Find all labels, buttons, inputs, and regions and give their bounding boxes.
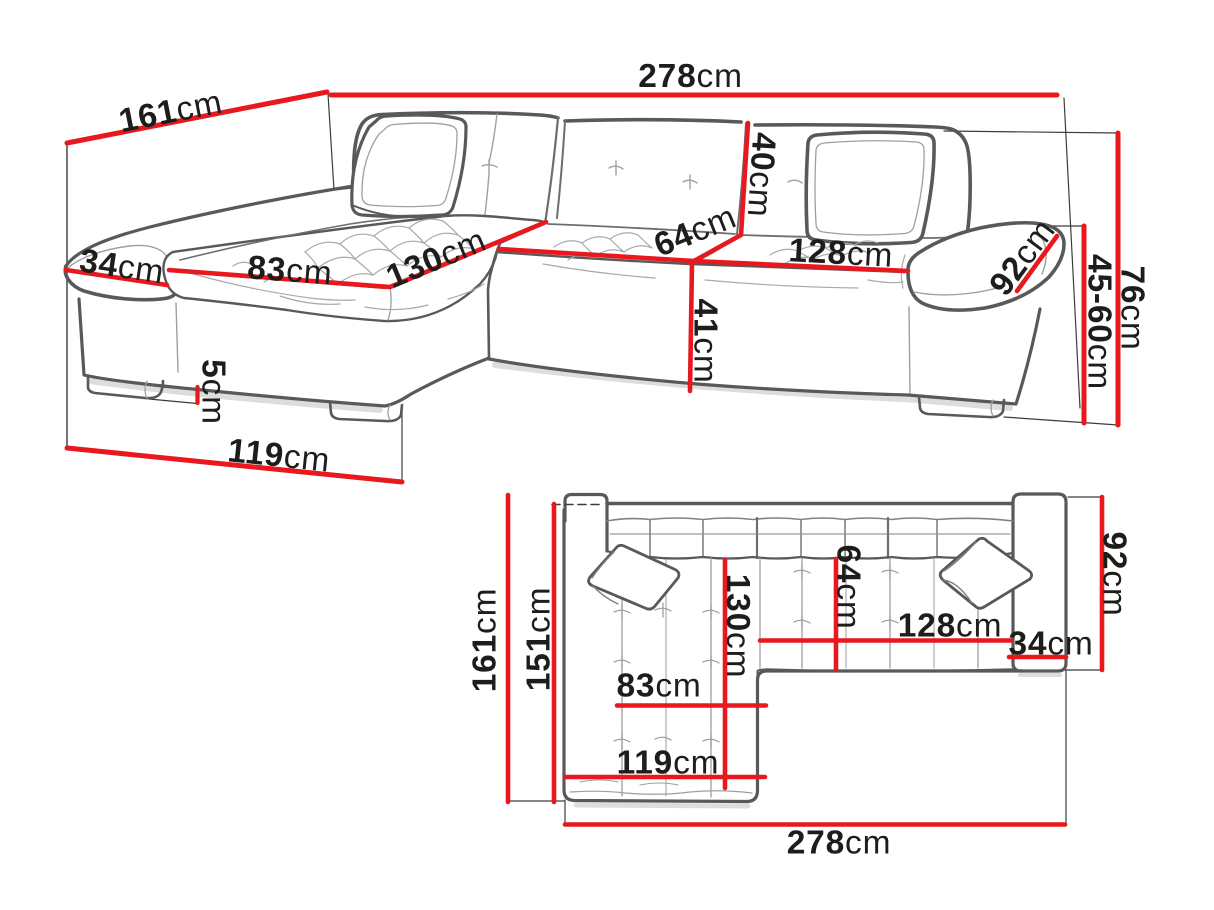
svg-text:41cm: 41cm [687, 298, 724, 383]
svg-text:278cm: 278cm [638, 58, 743, 95]
svg-text:128cm: 128cm [898, 608, 1003, 645]
svg-text:76cm: 76cm [1114, 265, 1151, 350]
svg-text:119cm: 119cm [617, 745, 720, 782]
svg-text:151cm: 151cm [521, 587, 558, 692]
svg-text:128cm: 128cm [788, 232, 894, 275]
svg-text:130cm: 130cm [719, 574, 756, 679]
svg-text:40cm: 40cm [740, 131, 782, 218]
svg-text:5cm: 5cm [195, 359, 232, 425]
svg-text:83cm: 83cm [246, 249, 334, 292]
svg-text:92cm: 92cm [1096, 531, 1133, 616]
svg-text:64cm: 64cm [830, 544, 867, 629]
svg-text:161cm: 161cm [467, 588, 504, 693]
svg-text:278cm: 278cm [787, 825, 892, 862]
svg-text:34cm: 34cm [1008, 626, 1093, 663]
svg-text:45-60cm: 45-60cm [1081, 254, 1118, 390]
svg-text:83cm: 83cm [616, 668, 701, 705]
